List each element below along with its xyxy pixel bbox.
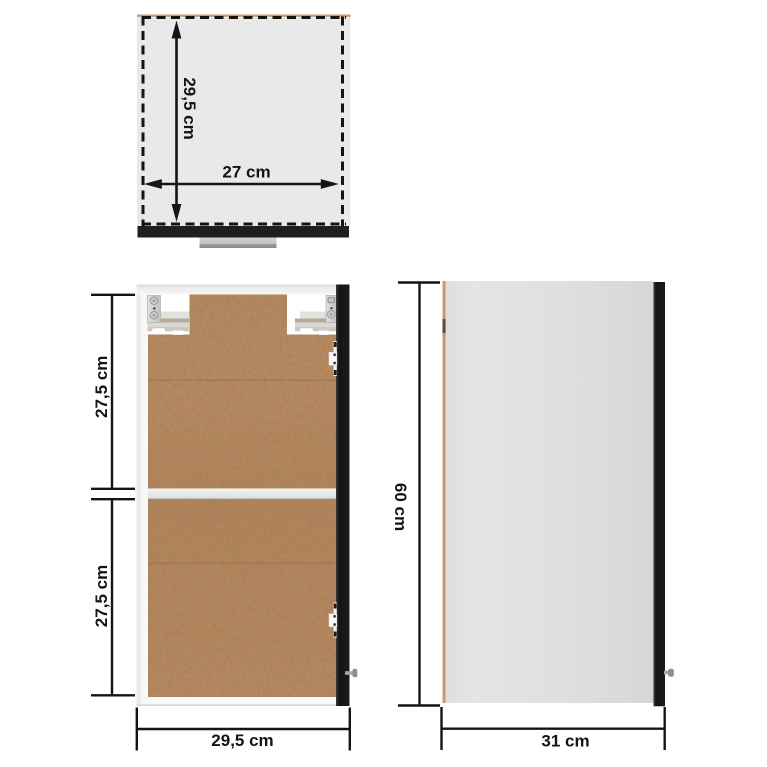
svg-text:29,5 cm: 29,5 cm bbox=[211, 731, 273, 750]
svg-text:29,5 cm: 29,5 cm bbox=[180, 77, 199, 139]
svg-text:27 cm: 27 cm bbox=[222, 163, 270, 182]
svg-text:27,5 cm: 27,5 cm bbox=[92, 356, 111, 418]
svg-text:60 cm: 60 cm bbox=[391, 483, 410, 531]
svg-text:31 cm: 31 cm bbox=[541, 732, 589, 751]
svg-text:27,5 cm: 27,5 cm bbox=[92, 565, 111, 627]
